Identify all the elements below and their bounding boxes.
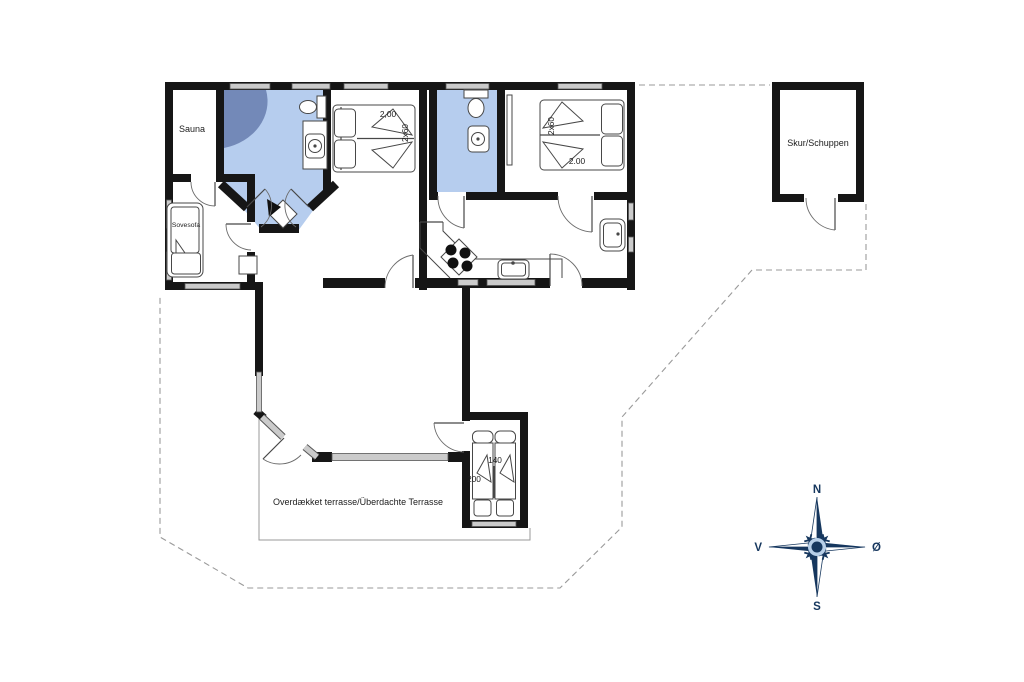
burner bbox=[446, 245, 457, 256]
bedroom3-width-label: 140 bbox=[488, 455, 502, 465]
pillow bbox=[497, 500, 514, 516]
bed-head bbox=[495, 431, 516, 443]
compass-rose: N Ø S V bbox=[754, 484, 881, 613]
compass-center bbox=[812, 542, 823, 553]
wardrobe bbox=[507, 95, 512, 165]
burner bbox=[448, 258, 459, 269]
pillow bbox=[474, 500, 491, 516]
floor-plan-page: Sauna Sovesofa 2,00 2x60 bbox=[0, 0, 1024, 682]
terrace-label: Overdækket terrasse/Überdachte Terrasse bbox=[273, 497, 443, 507]
burner bbox=[462, 261, 473, 272]
compass-west-label: V bbox=[754, 542, 762, 554]
toilet-tank-1 bbox=[317, 96, 326, 118]
floor-plan-svg: Sauna Sovesofa 2,00 2x60 bbox=[0, 0, 1024, 682]
compass-east-label: Ø bbox=[872, 542, 881, 554]
sauna-label: Sauna bbox=[179, 124, 205, 134]
bathroom1-fixtures bbox=[300, 96, 328, 169]
compass-north-label: N bbox=[813, 484, 821, 496]
utility-basin bbox=[600, 219, 625, 251]
toilet-tank-2 bbox=[464, 90, 488, 98]
cooktop bbox=[441, 239, 477, 275]
hall-side-table bbox=[239, 256, 257, 274]
pillow bbox=[602, 136, 623, 166]
pillow bbox=[335, 140, 356, 168]
burner bbox=[460, 248, 471, 259]
sofa-bed bbox=[167, 203, 203, 277]
bedroom2-bed bbox=[507, 95, 624, 170]
bedroom2-length-label: 2.00 bbox=[569, 156, 586, 166]
toilet-bowl-2 bbox=[468, 99, 484, 118]
sovesofa-label: Sovesofa bbox=[172, 222, 201, 229]
bed-head bbox=[473, 431, 494, 443]
compass-south-label: S bbox=[813, 601, 821, 613]
bedroom3-length-label: 200 bbox=[467, 474, 481, 484]
kitchen bbox=[420, 222, 562, 279]
pillow bbox=[602, 104, 623, 134]
toilet-bowl-1 bbox=[300, 101, 317, 114]
kitchen-faucet bbox=[511, 261, 515, 265]
bedroom1-length-label: 2,00 bbox=[380, 109, 397, 119]
bedroom1-bed-label: 2x60 bbox=[400, 124, 410, 142]
bedroom2-bed-label: 2x60 bbox=[546, 117, 556, 135]
shed-label: Skur/Schuppen bbox=[787, 138, 849, 148]
pillow bbox=[335, 109, 356, 137]
